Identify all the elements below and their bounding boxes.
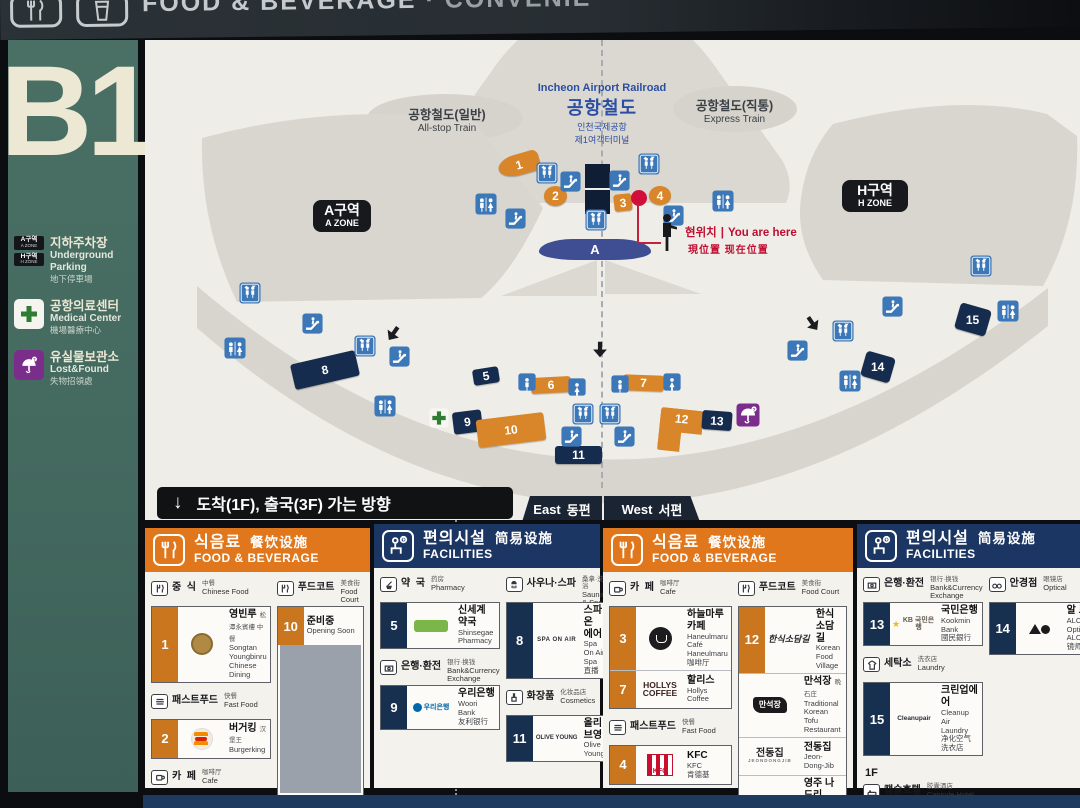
you-are-here-label: 현위치|You are here (685, 224, 797, 240)
store-entry-우리은행: 9우리은행우리은행Woori Bank友利银行 (381, 686, 499, 728)
woori-logo: 우리은행 (413, 703, 450, 712)
you-are-here-person-icon (657, 213, 679, 255)
store-number: 9 (381, 686, 407, 728)
category-sauna-spa: 사우나·스파 桑拿·洗浴Sauna & Spa (506, 577, 609, 599)
store-number: 2 (152, 720, 178, 758)
laundry-icon (863, 657, 880, 672)
a-zone-badge: A구역A ZONE (313, 200, 371, 232)
oliveyoung-logo: OLIVE YOUNG (536, 735, 578, 741)
floor-note: 1F (865, 767, 983, 779)
down-arrow-icon: ↓ (173, 492, 183, 514)
manseokjang-logo: 만석장 (753, 697, 787, 713)
directory-panels: 식음료餐饮设施FOOD & BEVERAGE 중 식 中餐Chinese Foo… (145, 520, 1080, 795)
store-entry-하늘마루카페: 3하늘마루카페Haneulmaru CaféHaneulmaru 咖啡厅 (610, 607, 731, 670)
burger-icon (609, 720, 626, 735)
youngbinru-logo (191, 633, 213, 655)
beverage-icon (76, 0, 128, 27)
facilities-person-icon (382, 530, 414, 562)
h-zone-badge: H구역H ZONE (842, 180, 908, 212)
store-number: 11 (507, 716, 533, 761)
bank-icon (380, 660, 397, 675)
store-entry-할리스: 7HOLLYSCOFFEE할리스Hollys Coffee (610, 670, 731, 708)
store-number: 7 (610, 671, 636, 708)
svg-text:?: ? (753, 407, 756, 412)
restroom-menw-icon (374, 395, 396, 417)
restroom-men-icon (611, 375, 629, 393)
escalator-icon (561, 426, 582, 447)
elevator-icon (599, 403, 621, 425)
elevator-icon (970, 255, 992, 277)
terminal-map: Incheon Airport Railroad 공항철도 인천국제공항 제1여… (145, 40, 1080, 520)
you-are-here-label-cn: 現位置 现在位置 (688, 241, 769, 256)
gate-a-band: A (539, 239, 651, 260)
sodamgil-logo: 한식소담길 (768, 635, 809, 644)
escalator-icon (614, 426, 635, 447)
store-entry-국민은행: 13KB 국민은행국민은행Kookmin Bank國民銀行 (864, 603, 982, 645)
railroad-core-shape (585, 164, 610, 214)
escalator-icon (609, 170, 630, 191)
food-court-icon (10, 0, 62, 28)
escalator-icon (505, 208, 526, 229)
direction-arrow-icon (589, 339, 611, 361)
top-header-bar: FOOD & BEVERAGE · CONVENIE (0, 0, 1080, 40)
category-pharmacy: 약 국 药房Pharmacy (380, 577, 500, 599)
west-food-header: 식음료餐饮设施FOOD & BEVERAGE (603, 528, 853, 572)
category-laundry: 세탁소 洗衣店Laundry (863, 657, 983, 679)
coffee-icon (609, 581, 626, 596)
legend-medical-center: 공항의료센터 Medical Center 機場醫療中心 (14, 299, 136, 336)
coffee-icon (151, 770, 168, 785)
store-number: 13 (864, 603, 890, 645)
map-marker-6: 6 (531, 376, 572, 394)
utensils-icon (277, 581, 294, 596)
map-marker-3: 3 (613, 193, 633, 212)
store-number: 15 (864, 683, 890, 755)
store-entry-한식소담길: 12한식소담길한식소담길KoreanFood Village (739, 607, 846, 673)
directory-panel-west-facilities: 편의시설简易设施FACILITIES 은행·환전 银行·换钱Bank&Curre… (857, 524, 1080, 788)
store-entry-만석장: 만석장만석장晩石庄Traditional KoreanTofu Restaura… (739, 673, 846, 737)
store-number: 1 (152, 607, 178, 682)
category-cafe: 카 페 咖啡厅Cafe (609, 581, 732, 603)
escalator-icon (560, 171, 581, 192)
directory-panel-east-food: 식음료餐饮设施FOOD & BEVERAGE 중 식 中餐Chinese Foo… (145, 528, 370, 788)
sidebar: B1 A구역A ZONE H구역H ZONE 지하주차장 Underground… (8, 40, 138, 792)
restroom-menw-icon (712, 190, 734, 212)
map-marker-11: 11 (555, 446, 602, 464)
alo-logo (1028, 622, 1052, 636)
store-entry-올리브영: 11OLIVE YOUNG올리브영Olive Young (507, 716, 608, 761)
lost-found-icon: ? (14, 350, 44, 380)
escalator-icon (882, 296, 903, 317)
restroom-menw-icon (475, 193, 497, 215)
category-cafe: 카 페 咖啡厅Cafe (151, 770, 271, 792)
fork-knife-icon (611, 534, 643, 566)
elevator-icon (638, 153, 660, 175)
cosmetics-icon (506, 690, 523, 705)
legend-lost-found: ? 유실물보관소 Lost&Found 失物招領處 (14, 350, 136, 387)
spaonair-logo: SPA ON AIR (537, 637, 576, 643)
spa-icon (506, 577, 523, 592)
store-number: 4 (610, 746, 636, 784)
restroom-men-icon (518, 373, 536, 391)
category-fast-food: 패스트푸드 快餐Fast Food (609, 720, 732, 742)
map-marker-13: 13 (701, 410, 732, 431)
you-are-here-line (637, 204, 639, 244)
pharmacy-icon (380, 577, 397, 592)
store-entry-크린업에어: 15Cleanupair크린업에어Cleanup Air Laundry净化空气… (864, 683, 982, 755)
all-stop-train-label: 공항철도(일반)All-stop Train (367, 104, 527, 134)
east-food-header: 식음료餐饮设施FOOD & BEVERAGE (145, 528, 370, 572)
store-number: 5 (381, 603, 407, 648)
haneulmaru-logo (649, 627, 672, 650)
escalator-icon (302, 313, 323, 334)
sidebar-legend: A구역A ZONE H구역H ZONE 지하주차장 Underground Pa… (14, 236, 136, 401)
elevator-icon (572, 403, 594, 425)
escalator-icon (787, 340, 808, 361)
map-marker-4: 4 (649, 186, 671, 205)
category-chinese-food: 중 식 中餐Chinese Food (151, 581, 271, 603)
store-number: 8 (507, 603, 533, 678)
category-bank-currency-exchange: 은행·환전 银行·换钱Bank&Currency Exchange (380, 660, 500, 682)
category-cosmetics: 화장품 化妆品店Cosmetics (506, 690, 609, 712)
utensils-icon (151, 581, 168, 596)
jeondongjib-logo: 전동집JEONDONGJIB (748, 749, 792, 764)
store-number: 12 (739, 607, 765, 673)
store-entry-알-로: 14알 로ALO OpticianALO配镜师 (990, 603, 1080, 654)
restroom-menw-icon (224, 337, 246, 359)
express-train-label: 공항철도(직통)Express Train (672, 95, 797, 125)
category-food-court: 푸드코트 美食街Food Court (738, 581, 847, 603)
hollys-logo: HOLLYSCOFFEE (643, 681, 677, 699)
pharmacy-cross-icon (429, 408, 449, 428)
facilities-person-icon (865, 530, 897, 562)
restroom-menw-icon (839, 370, 861, 392)
store-entry-준비중: 10준비중Opening Soon (278, 607, 363, 645)
burgerking-logo (191, 728, 213, 750)
escalator-icon (389, 346, 410, 367)
category-fast-food: 패스트푸드 快餐Fast Food (151, 694, 271, 716)
directory-panel-west-food: 식음료餐饮设施FOOD & BEVERAGE 카 페 咖啡厅Cafe3하늘마루카… (603, 528, 853, 788)
elevator-icon (354, 335, 376, 357)
elevator-icon (585, 209, 607, 231)
fork-knife-icon (153, 534, 185, 566)
store-entry-스파-온-에어: 8SPA ON AIR스파 온 에어Spa On AirSpa 直播 (507, 603, 608, 678)
west-facilities-header: 편의시설简易设施FACILITIES (857, 524, 1080, 568)
store-entry-전동집: 전동집JEONDONGJIB전동집Jeon-Dong-Jib (739, 737, 846, 775)
store-entry-영빈루: 1영빈루松潭永賓樓 中餐Songtan YoungbinruChinese Di… (152, 607, 270, 682)
direction-note: ↓ 도착(1F), 출국(3F) 가는 방향 (157, 487, 513, 519)
store-entry-KFC: 4KFCKFCKFC肯德基 (610, 746, 731, 784)
elevator-icon (239, 282, 261, 304)
legend-underground-parking: A구역A ZONE H구역H ZONE 지하주차장 Underground Pa… (14, 236, 136, 285)
bottom-strip (143, 795, 1080, 808)
store-number: 10 (278, 607, 304, 645)
foodcourt-placeholder (280, 645, 361, 793)
category-food-court: 푸드코트 美食街Food Court (277, 581, 364, 603)
header-title: FOOD & BEVERAGE · CONVENIE (142, 0, 592, 18)
elevator-icon (536, 162, 558, 184)
category-optical: 안경점 眼镜店Optical (989, 577, 1080, 599)
restroom-women-icon (663, 373, 681, 391)
kfc-logo: KFC (647, 754, 673, 776)
directory-panel-east-facilities: 편의시설简易设施FACILITIES 약 국 药房Pharmacy5신세계 약국… (374, 524, 600, 788)
store-number: 14 (990, 603, 1016, 654)
kb-logo: KB 국민은행 (892, 617, 936, 631)
east-facilities-header: 편의시설简易设施FACILITIES (374, 524, 600, 568)
shinsegae-logo (414, 620, 448, 632)
burger-icon (151, 694, 168, 709)
category-bank-currency-exchange: 은행·환전 银行·换钱Bank&Currency Exchange (863, 577, 983, 599)
floor-label: B1 (0, 48, 152, 176)
cleanup-logo: Cleanupair (897, 716, 931, 723)
you-are-here-dot (631, 190, 647, 206)
directory-sign-photo: FOOD & BEVERAGE · CONVENIE B1 A구역A ZONE … (0, 0, 1080, 808)
store-entry-버거킹: 2버거킹汉堡王Burgerking (152, 720, 270, 758)
restroom-women-icon (568, 378, 586, 396)
zone-badges-icon: A구역A ZONE H구역H ZONE (14, 236, 44, 266)
utensils-icon (738, 581, 755, 596)
elevator-icon (832, 320, 854, 342)
restroom-menw-icon (997, 300, 1019, 322)
store-number: 3 (610, 607, 636, 670)
bank-icon (863, 577, 880, 592)
lost-found-icon: ? (736, 403, 760, 427)
store-entry-신세계-약국: 5신세계 약국ShinsegaePharmacy (381, 603, 499, 648)
west-section-label: West서편 (604, 496, 700, 520)
glasses-icon (989, 577, 1006, 592)
east-section-label: East동편 (522, 496, 602, 520)
medical-cross-icon (14, 299, 44, 329)
